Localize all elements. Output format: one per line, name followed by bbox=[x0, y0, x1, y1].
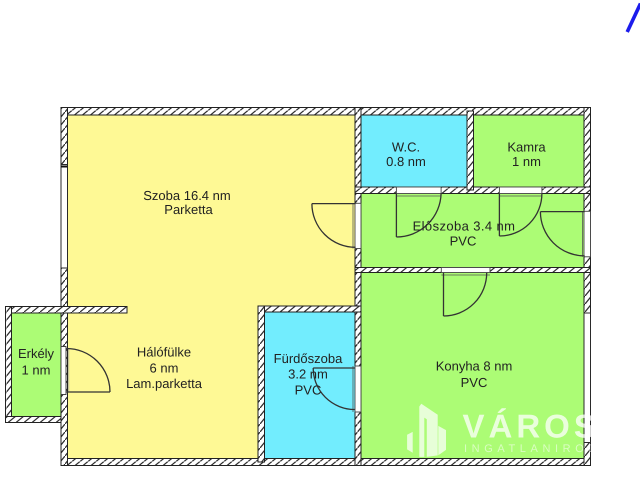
svg-text:0.8 nm: 0.8 nm bbox=[386, 154, 426, 169]
svg-text:6 nm: 6 nm bbox=[150, 361, 179, 376]
svg-text:1 nm: 1 nm bbox=[22, 363, 51, 378]
svg-text:Erkély: Erkély bbox=[18, 346, 55, 361]
svg-text:W.C.: W.C. bbox=[392, 140, 420, 155]
svg-text:PVC: PVC bbox=[450, 234, 477, 249]
svg-text:Előszoba 3.4 nm: Előszoba 3.4 nm bbox=[413, 219, 516, 234]
svg-text:Konyha 8 nm: Konyha 8 nm bbox=[436, 359, 513, 374]
svg-text:INGATLANIRODA: INGATLANIRODA bbox=[464, 443, 613, 455]
svg-text:Lam.parketta: Lam.parketta bbox=[126, 376, 203, 391]
svg-text:Parketta: Parketta bbox=[164, 202, 213, 217]
svg-text:Szoba 16.4 nm: Szoba 16.4 nm bbox=[143, 188, 230, 203]
svg-text:PVC: PVC bbox=[461, 375, 488, 390]
svg-text:1 nm: 1 nm bbox=[512, 154, 541, 169]
svg-text:Kamra: Kamra bbox=[507, 140, 546, 155]
svg-text:3.2 nm: 3.2 nm bbox=[288, 367, 328, 382]
svg-text:Fürdőszoba: Fürdőszoba bbox=[274, 351, 343, 366]
svg-text:VÁROSI: VÁROSI bbox=[463, 407, 614, 444]
svg-text:PVC: PVC bbox=[295, 383, 322, 398]
svg-text:Hálófülke: Hálófülke bbox=[137, 345, 191, 360]
